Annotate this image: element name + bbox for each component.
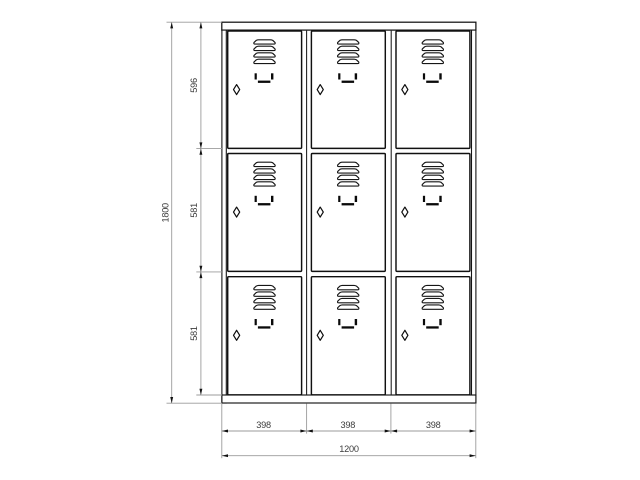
svg-text:581: 581	[189, 203, 199, 218]
svg-text:596: 596	[189, 78, 199, 93]
svg-text:398: 398	[341, 420, 356, 430]
svg-text:398: 398	[256, 420, 271, 430]
svg-text:1200: 1200	[339, 444, 359, 454]
svg-text:1800: 1800	[161, 203, 171, 223]
svg-text:398: 398	[426, 420, 441, 430]
svg-text:581: 581	[189, 326, 199, 341]
